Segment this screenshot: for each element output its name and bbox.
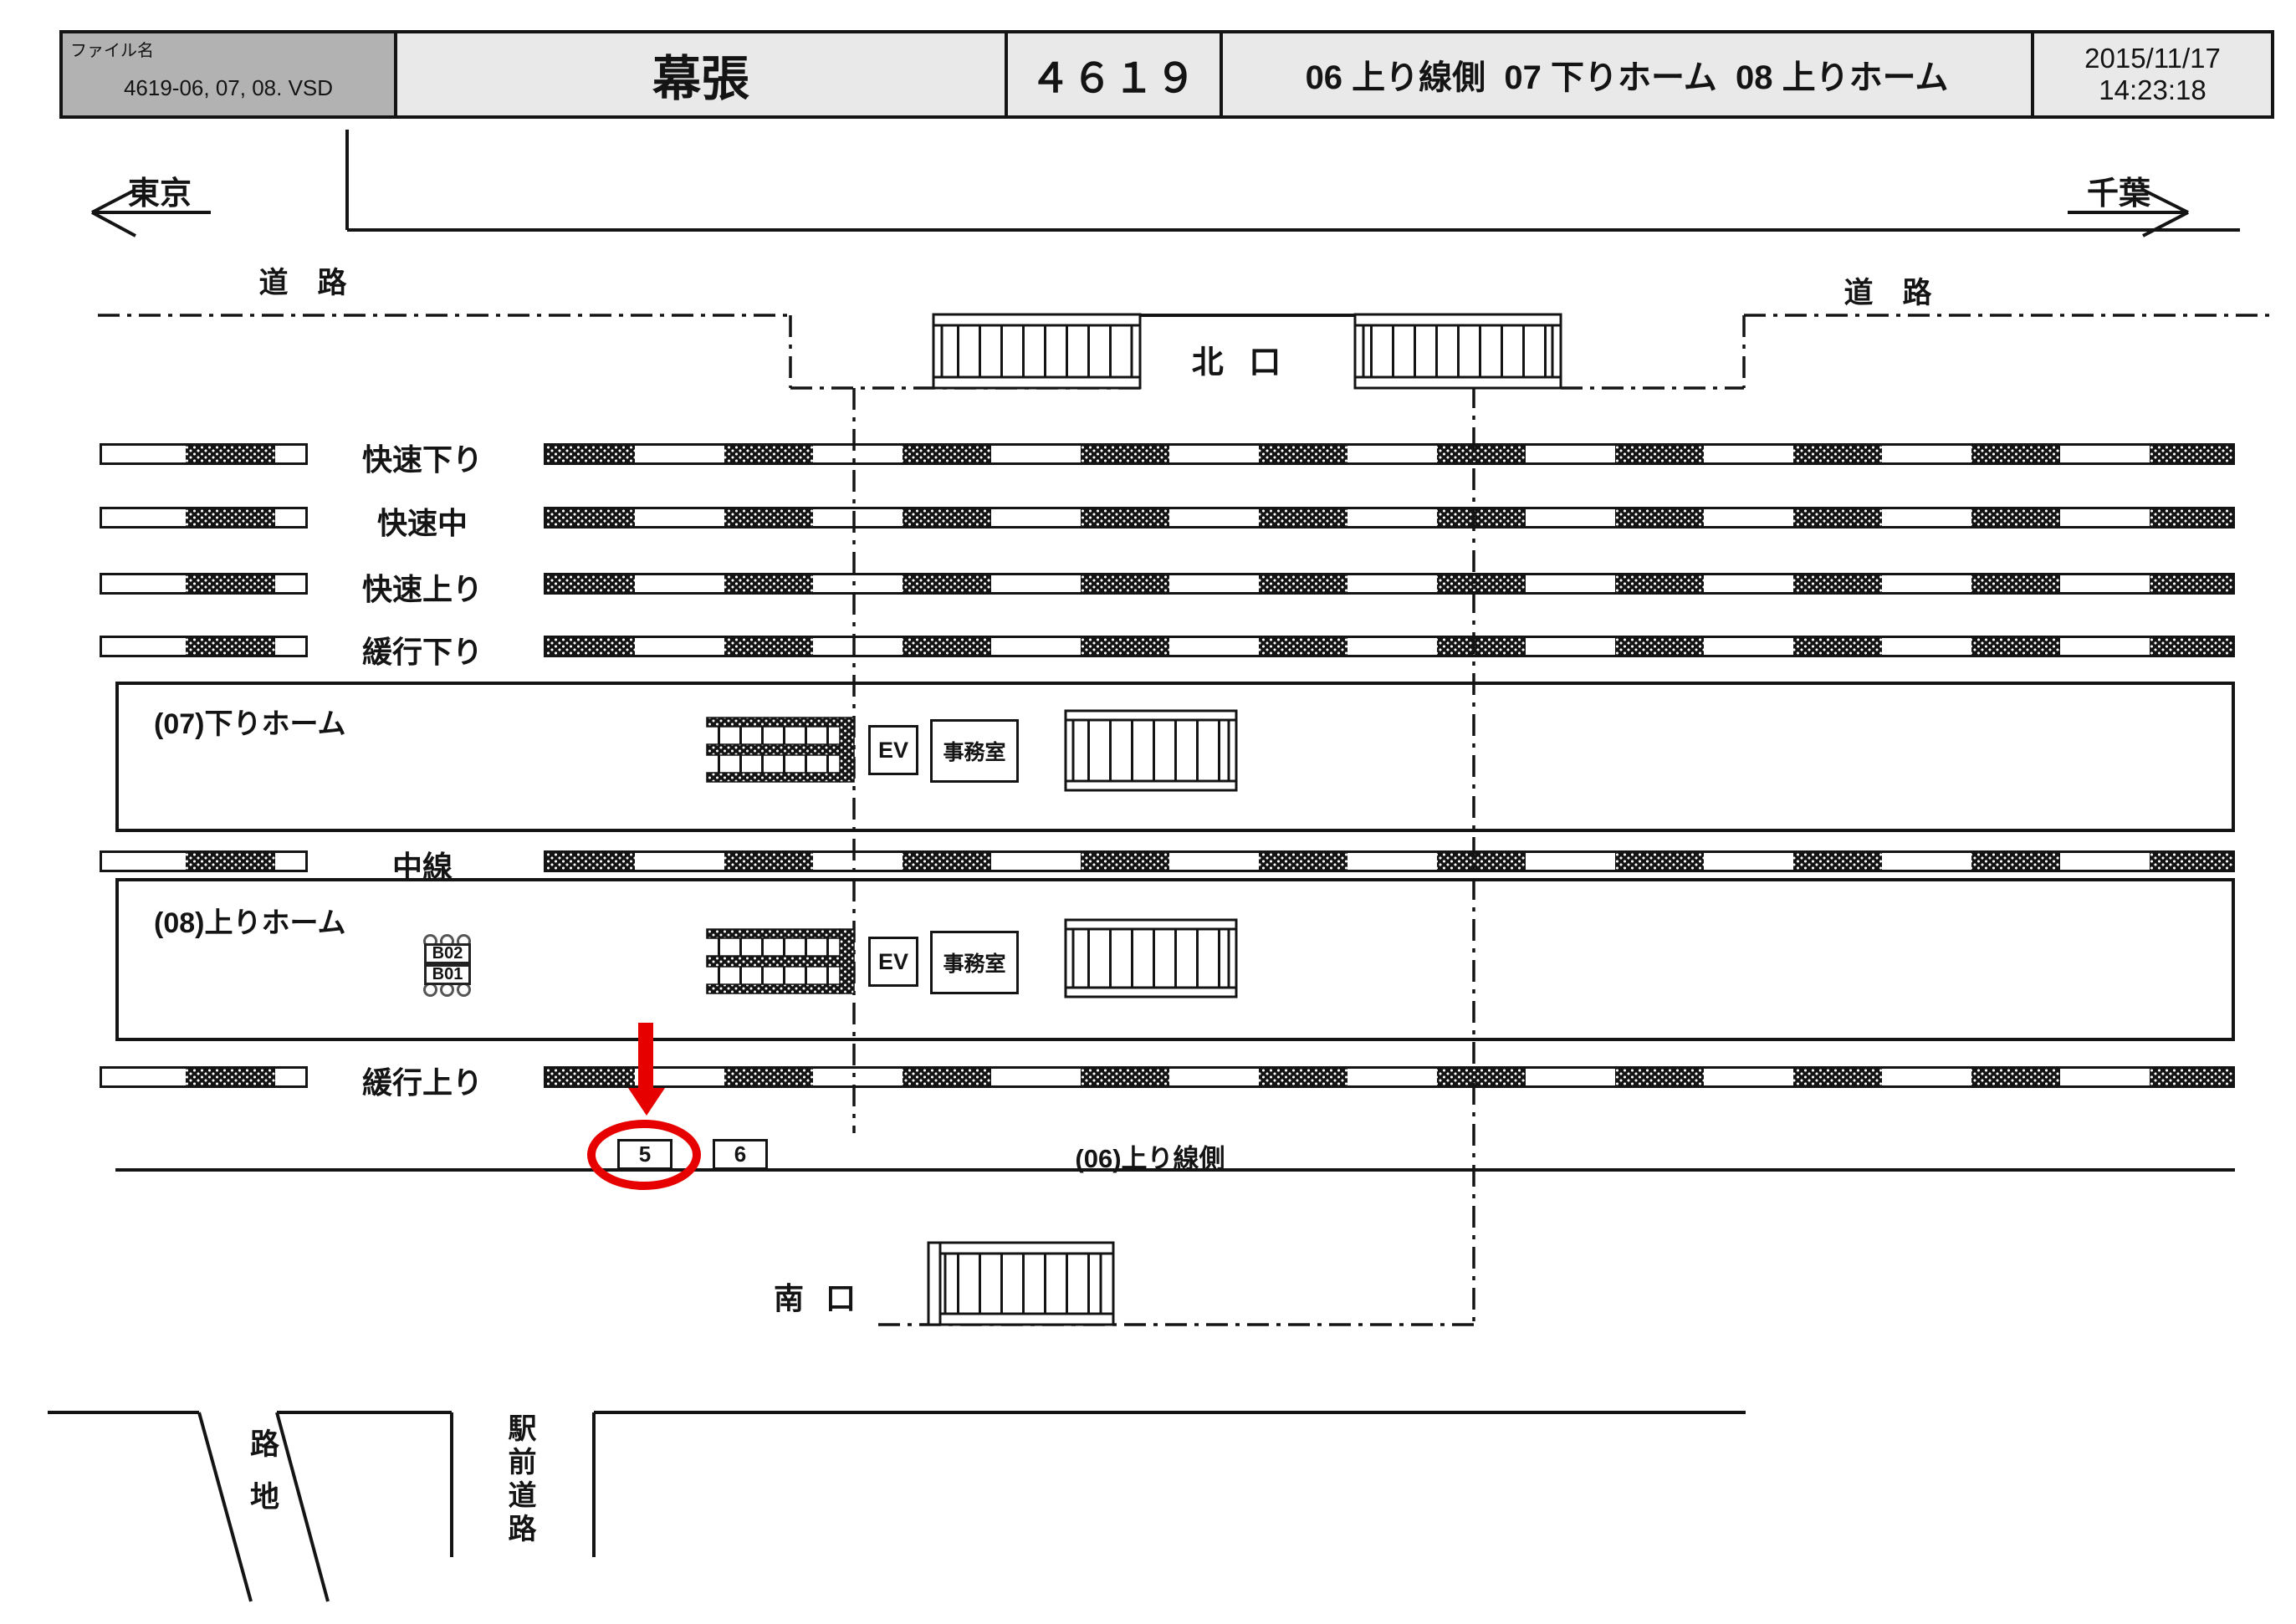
- elevator-box-07: EV: [868, 725, 918, 775]
- ad-b02-label: B02: [432, 944, 463, 963]
- trackside-06-label: (06)上り線側: [1062, 1137, 1238, 1175]
- north-stairs-right: [1355, 314, 1561, 388]
- date-stamp: 2015/11/17: [2084, 43, 2221, 74]
- north-stairs-left: [933, 314, 1140, 388]
- track-stub: [100, 507, 308, 529]
- header-sheets-box: 06 上り線側 07 下りホーム 08 上りホーム: [1220, 30, 2034, 119]
- direction-left-label: 東京: [124, 167, 196, 213]
- road-label-right: 道 路: [1825, 269, 1951, 312]
- header-number-box: ４６１９: [1005, 30, 1223, 119]
- track-bar: [544, 1066, 2235, 1088]
- elevator-label: EV: [878, 949, 908, 975]
- track-stub: [100, 1066, 308, 1088]
- platform-07-label: (07)下りホーム: [154, 701, 345, 742]
- filename-value: 4619-06, 07, 08. VSD: [59, 75, 397, 101]
- header-datetime-box: 2015/11/17 14:23:18: [2031, 30, 2274, 119]
- track-stub: [100, 636, 308, 657]
- south-exit-label: 南 口: [768, 1274, 868, 1318]
- station-name: 幕張: [652, 39, 749, 110]
- track-bar: [544, 850, 2235, 872]
- station-front-road-label: 駅前道路: [499, 1413, 540, 1562]
- bottom-road-lines: [48, 1412, 1746, 1601]
- track-stub: [100, 573, 308, 595]
- sheet-titles: 06 上り線側 07 下りホーム 08 上りホーム: [1306, 50, 1949, 99]
- drawing-number: ４６１９: [1030, 45, 1197, 104]
- office-label: 事務室: [943, 736, 1005, 766]
- platform-07: [115, 682, 2235, 832]
- ad-position-5-box: 5: [617, 1139, 672, 1170]
- track-label-local-up: 緩行上り: [326, 1059, 519, 1102]
- ad-position-b01: B01: [424, 964, 471, 985]
- direction-right-label: 千葉: [2083, 167, 2155, 213]
- south-stairs: [928, 1243, 1113, 1325]
- filename-caption: ファイル名: [70, 37, 154, 61]
- track-label-rapid-down: 快速下り: [326, 436, 519, 479]
- office-label: 事務室: [943, 947, 1005, 978]
- ad-6-label: 6: [734, 1141, 746, 1167]
- office-box-07: 事務室: [930, 719, 1019, 783]
- track-label-rapid-mid: 快速中: [326, 499, 519, 543]
- track-stub: [100, 443, 308, 465]
- road-label-left: 道 路: [240, 259, 366, 302]
- ad-b01-label: B01: [432, 965, 463, 984]
- track-bar: [544, 636, 2235, 657]
- station-drawing-page: ファイル名 4619-06, 07, 08. VSD 幕張 ４６１９ 06 上り…: [0, 0, 2296, 1624]
- track-label-local-down: 緩行下り: [326, 628, 519, 672]
- alley-label: 路地: [241, 1428, 284, 1562]
- platform-08-label: (08)上りホーム: [154, 900, 345, 941]
- track-label-rapid-up: 快速上り: [326, 565, 519, 609]
- office-box-08: 事務室: [930, 931, 1019, 994]
- track-bar: [544, 507, 2235, 529]
- ad-position-b02: B02: [424, 943, 471, 964]
- ad-position-6-box: 6: [713, 1139, 768, 1170]
- elevator-box-08: EV: [868, 937, 918, 987]
- track-bar: [544, 573, 2235, 595]
- track-stub: [100, 850, 308, 872]
- track-bar: [544, 443, 2235, 465]
- time-stamp: 14:23:18: [2099, 74, 2206, 106]
- header-station-box: 幕張: [394, 30, 1008, 119]
- ad-5-label: 5: [639, 1141, 651, 1167]
- north-exit-label: 北 口: [1184, 336, 1296, 382]
- elevator-label: EV: [878, 738, 908, 763]
